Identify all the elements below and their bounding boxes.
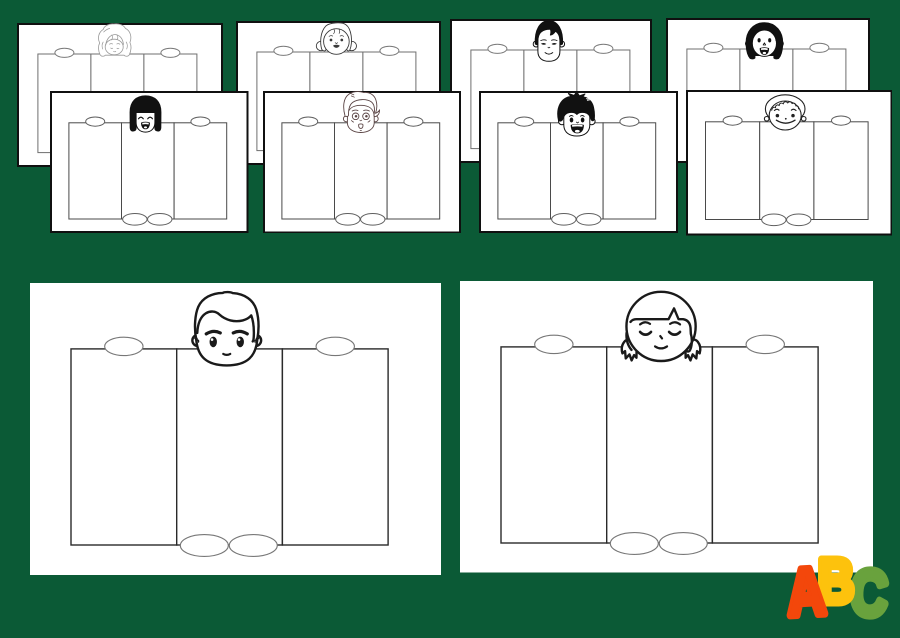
svg-text:A: A [785,554,827,630]
svg-text:C: C [849,558,889,631]
